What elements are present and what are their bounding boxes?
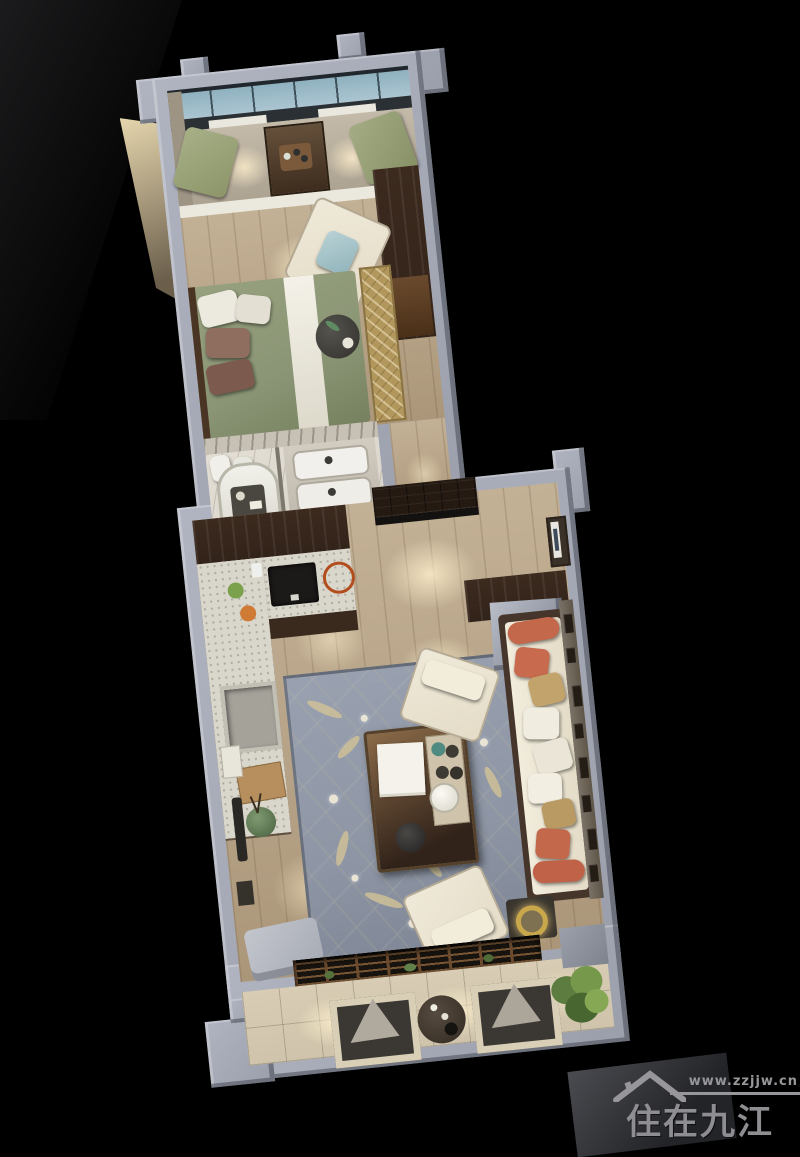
tray-cup (342, 337, 354, 349)
shelf-niche (581, 795, 592, 813)
armchair-cushion (314, 229, 361, 278)
balcony-plant (545, 962, 613, 1032)
watermark-brand: 住在九江 (626, 1094, 774, 1145)
cooktop (267, 562, 319, 607)
rug-blossom (360, 714, 368, 722)
shelf-niche (587, 828, 598, 850)
shelf-niche (563, 614, 574, 634)
tray-leaf (324, 319, 341, 333)
iron-kettle (394, 821, 427, 854)
balcony-utility-box (559, 924, 609, 969)
shelf-niche (588, 864, 599, 882)
rug-blossom (480, 738, 489, 747)
table-kettle (444, 1022, 458, 1036)
rug-leaf (482, 765, 505, 800)
bay-tea-cabinet (263, 121, 330, 197)
shelf-niche (572, 685, 583, 707)
plant-glint (324, 970, 335, 979)
shelf-niche (566, 647, 577, 663)
shelf-niche (573, 723, 584, 739)
plant-glint (404, 963, 417, 972)
plant-glint (483, 954, 494, 963)
chair-seat-cone (478, 984, 541, 1047)
rug-leaf (364, 889, 405, 911)
tea-tray (278, 142, 313, 171)
watermark-url: www.zzjjw.cn (689, 1074, 798, 1089)
glass-cups (251, 563, 262, 578)
rug-blossom (351, 874, 359, 882)
small-stool (236, 880, 254, 906)
rendered-floorplan-image: { "meta": { "description": "Top-down 3D … (0, 0, 800, 1148)
rug-blossom (329, 794, 339, 804)
teacup (283, 152, 291, 160)
caddy-item (249, 500, 262, 509)
apartment-unit (109, 11, 637, 1104)
table-cup (441, 1013, 449, 1021)
rug-leaf (305, 698, 343, 722)
sofa-pillow-coral (535, 828, 571, 860)
shelf-niche (578, 757, 589, 779)
gold-lamp (514, 904, 549, 939)
tea-bowl (445, 744, 459, 758)
tea-bowl (431, 742, 446, 757)
watermark: www.zzjjw.cn 住在九江 (612, 1072, 800, 1144)
tea-bowl (435, 765, 449, 779)
teacup (301, 155, 309, 163)
cooktop-knob (290, 594, 299, 601)
bed-pillow-mauve (206, 328, 250, 358)
sofa-pillow-white (523, 707, 559, 739)
teacup (293, 148, 301, 156)
caddy-item (235, 491, 245, 501)
tea-table (363, 721, 479, 873)
books (377, 742, 426, 794)
table-cup (430, 1004, 438, 1012)
wall-shelf-items (220, 745, 243, 779)
bed-pillow-white (235, 293, 272, 324)
chair-back-cushion (420, 658, 487, 702)
kitchen-sink (220, 681, 283, 754)
rug-leaf (335, 733, 362, 761)
rug-leaf (334, 830, 351, 867)
balcony-lounge-chair (329, 992, 422, 1069)
sofa-bolster (532, 859, 585, 884)
bed (188, 270, 371, 439)
bed-pillow-mauve (205, 357, 256, 396)
tea-bowl (449, 766, 463, 780)
chair-seat-cone (337, 999, 400, 1062)
